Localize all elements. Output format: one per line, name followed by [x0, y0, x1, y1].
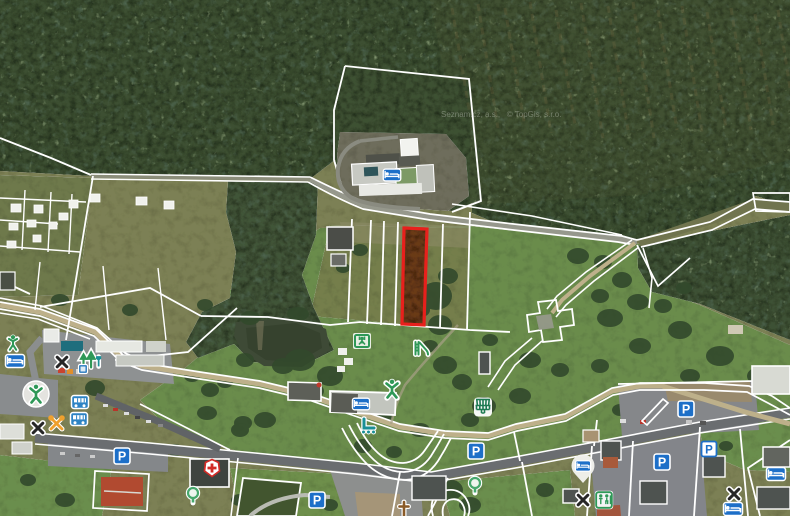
svg-text:Seznam.cz, a.s., © TopGis, s: Seznam.cz, a.s., © TopGis, s.r.o. [441, 110, 561, 119]
